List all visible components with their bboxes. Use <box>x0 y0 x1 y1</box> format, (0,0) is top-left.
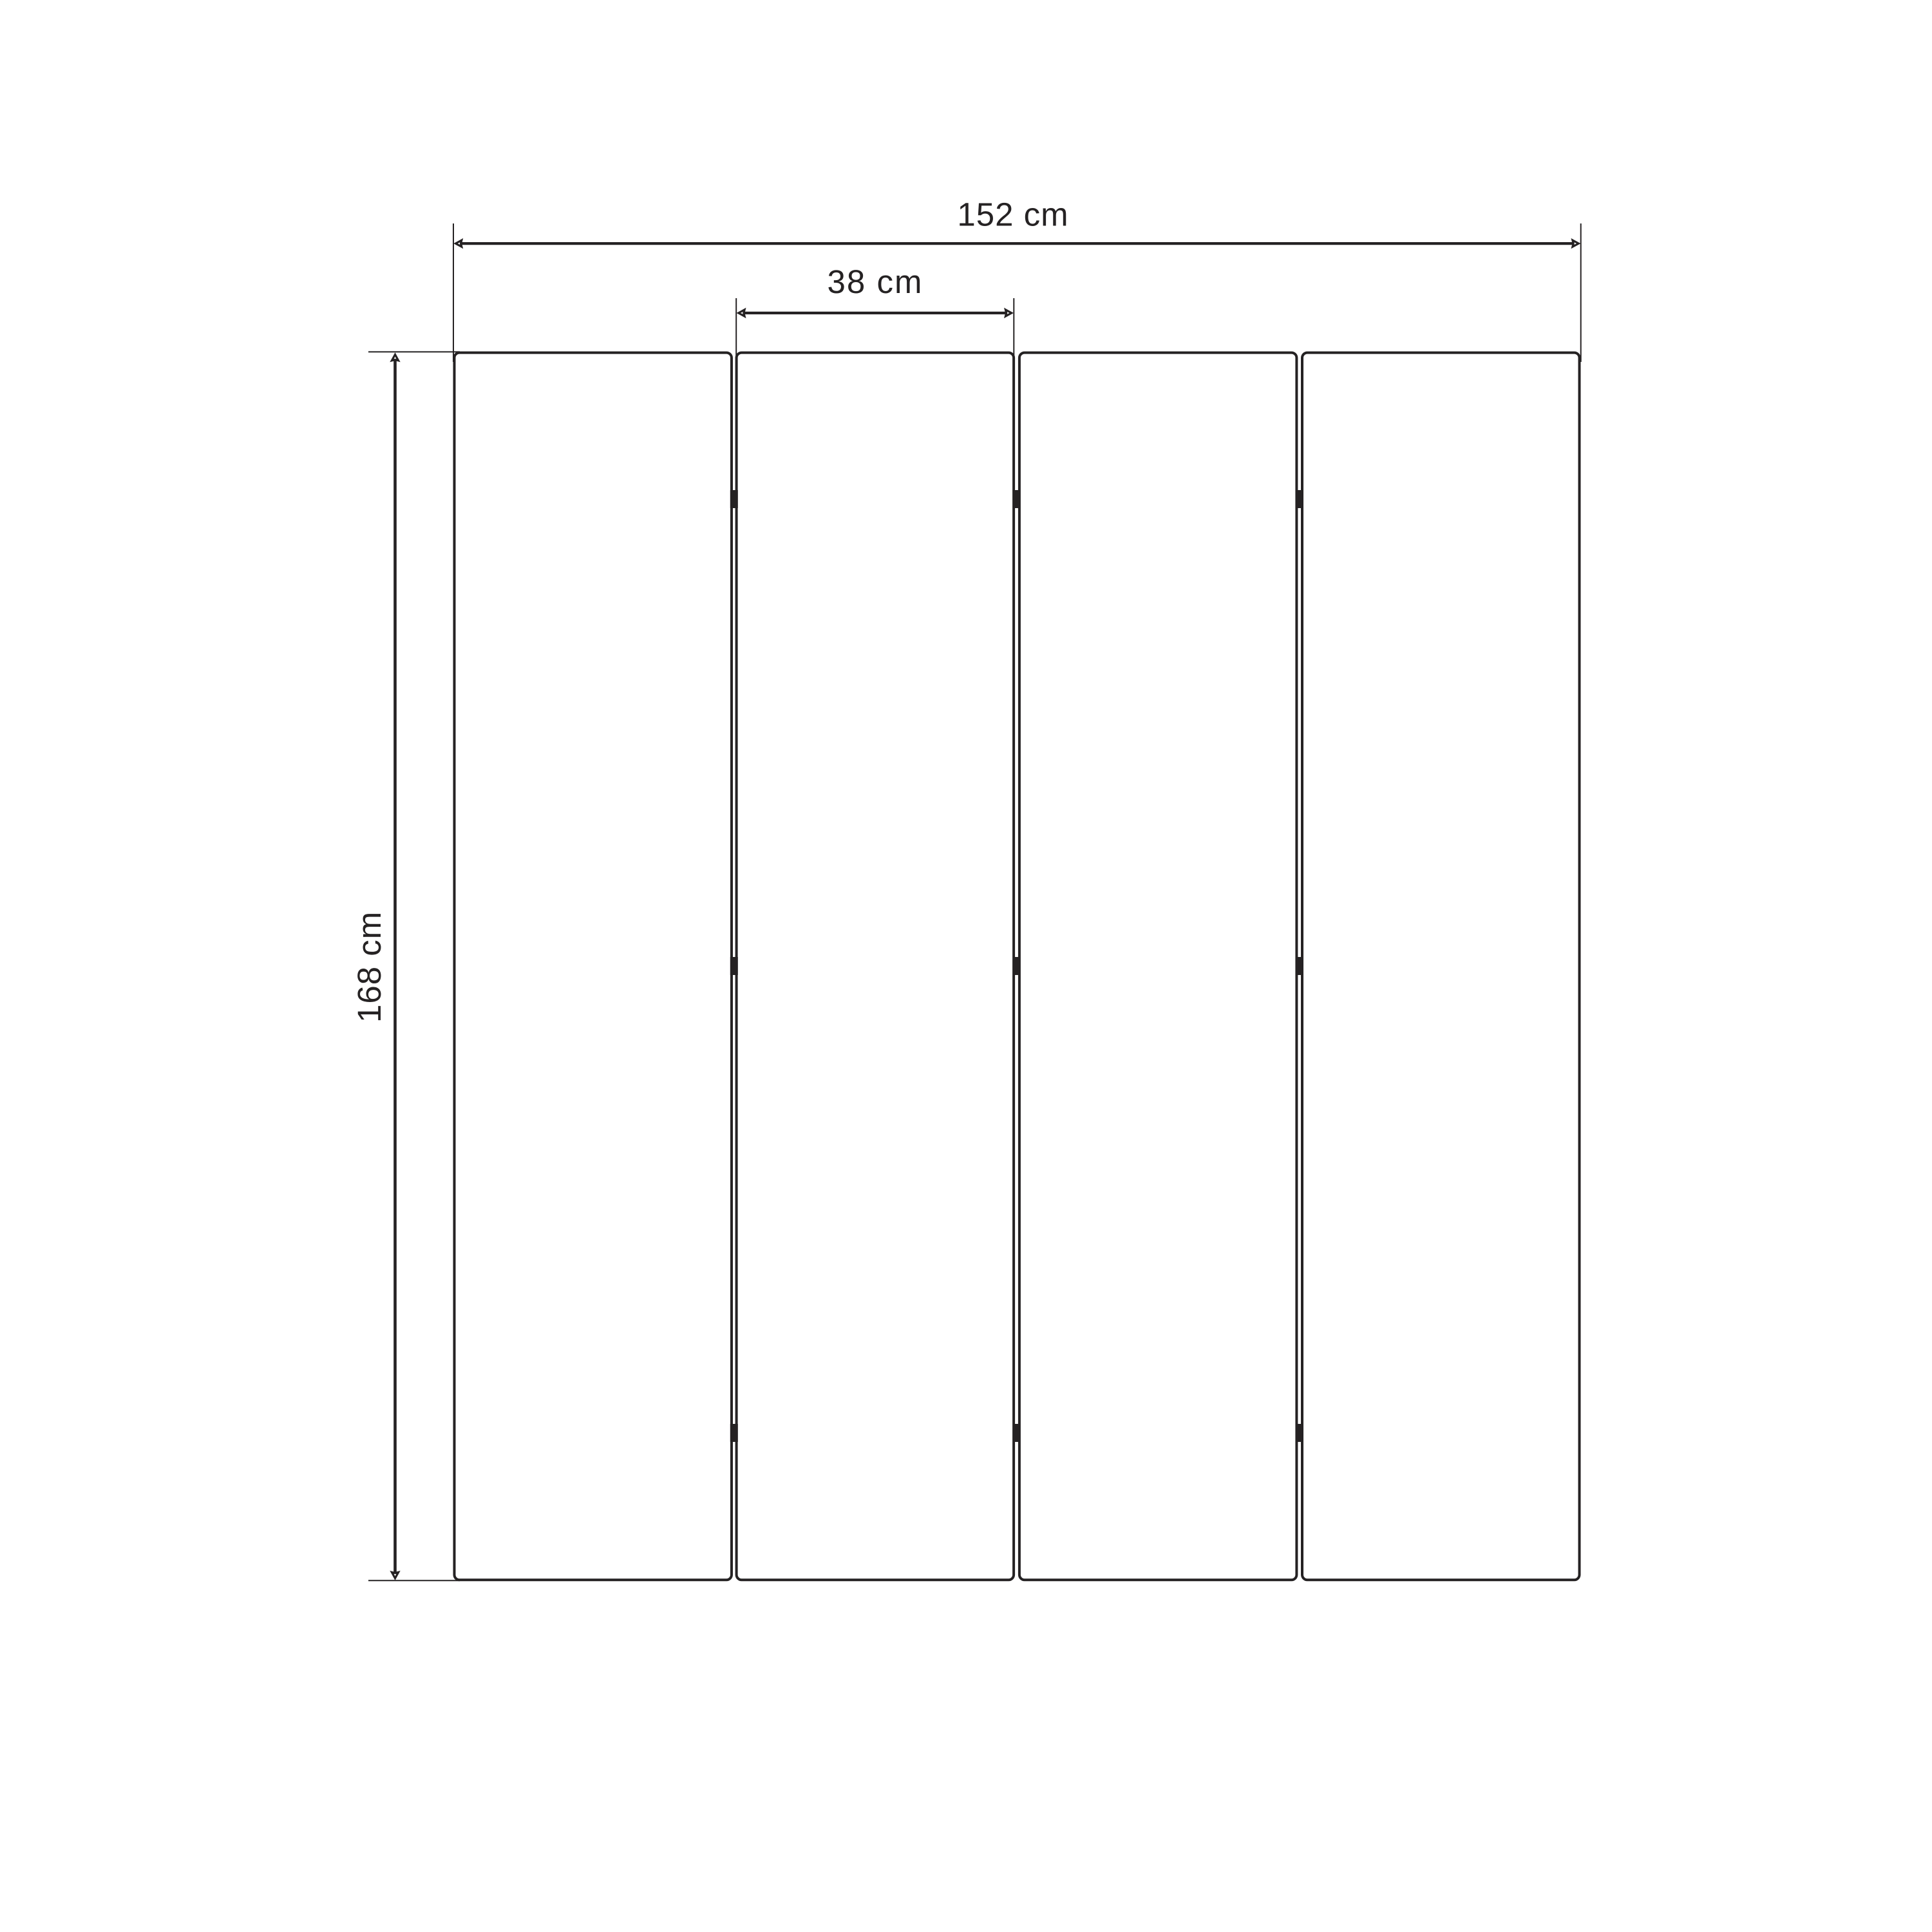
svg-text:38 cm: 38 cm <box>828 263 923 300</box>
svg-text:168 cm: 168 cm <box>351 911 388 1023</box>
svg-text:152 cm: 152 cm <box>957 196 1068 233</box>
